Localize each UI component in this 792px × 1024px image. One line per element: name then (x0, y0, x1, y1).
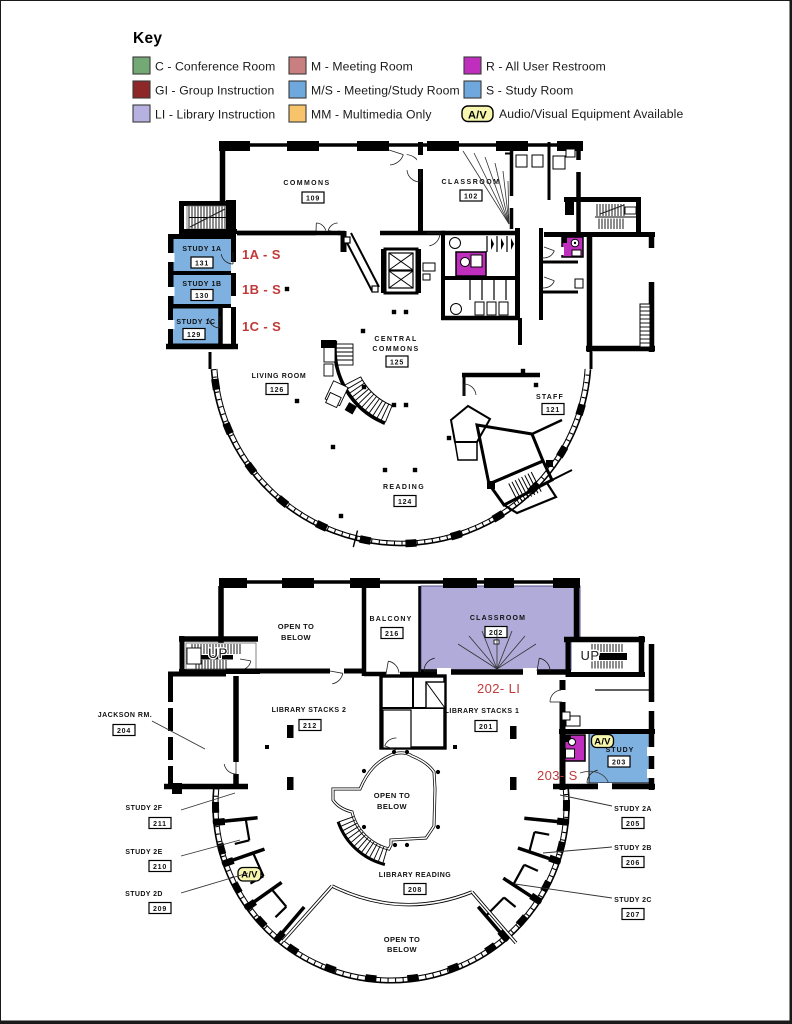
svg-text:109: 109 (306, 196, 320, 203)
svg-text:206: 206 (626, 860, 640, 867)
svg-text:CLASSROOM: CLASSROOM (442, 179, 501, 186)
svg-text:COMMONS: COMMONS (372, 346, 419, 353)
svg-text:203: 203 (612, 760, 626, 767)
svg-text:BELOW: BELOW (377, 802, 407, 811)
svg-text:STUDY 2B: STUDY 2B (614, 845, 652, 852)
svg-text:129: 129 (187, 332, 201, 339)
svg-text:STUDY 1C: STUDY 1C (176, 319, 215, 326)
svg-text:STAFF: STAFF (536, 394, 564, 401)
svg-text:207: 207 (626, 912, 640, 919)
svg-text:124: 124 (398, 499, 412, 506)
svg-text:LIVING ROOM: LIVING ROOM (252, 373, 307, 380)
svg-text:202: 202 (489, 630, 503, 637)
svg-text:M/S - Meeting/Study Room: M/S - Meeting/Study Room (311, 84, 460, 98)
svg-text:131: 131 (195, 261, 209, 268)
svg-text:BELOW: BELOW (281, 633, 311, 642)
svg-text:1C - S: 1C - S (242, 319, 281, 334)
svg-text:CENTRAL: CENTRAL (374, 336, 417, 343)
svg-text:STUDY 1B: STUDY 1B (182, 281, 221, 288)
svg-text:STUDY 2A: STUDY 2A (614, 806, 652, 813)
svg-text:102: 102 (464, 194, 478, 201)
svg-text:S - Study Room: S - Study Room (486, 84, 573, 98)
svg-text:204: 204 (117, 728, 131, 735)
svg-text:Key: Key (133, 30, 162, 47)
svg-text:212: 212 (303, 723, 317, 730)
svg-text:STUDY 2F: STUDY 2F (126, 805, 163, 812)
svg-text:Audio/Visual Equipment Availab: Audio/Visual Equipment Available (499, 107, 683, 121)
svg-text:208: 208 (408, 887, 422, 894)
svg-text:STUDY 2E: STUDY 2E (125, 849, 162, 856)
svg-text:BALCONY: BALCONY (369, 616, 412, 623)
svg-text:JACKSON RM.: JACKSON RM. (98, 712, 153, 719)
svg-text:210: 210 (153, 864, 167, 871)
svg-text:BELOW: BELOW (387, 945, 417, 954)
svg-text:216: 216 (385, 631, 399, 638)
svg-text:STUDY 1A: STUDY 1A (182, 246, 221, 253)
svg-text:STUDY: STUDY (606, 747, 635, 754)
svg-text:211: 211 (153, 821, 167, 828)
svg-text:205: 205 (626, 821, 640, 828)
svg-text:LIBRARY STACKS 2: LIBRARY STACKS 2 (272, 707, 347, 714)
svg-text:201: 201 (479, 724, 493, 731)
svg-text:CLASSROOM: CLASSROOM (470, 615, 526, 622)
svg-text:202- LI: 202- LI (477, 681, 520, 696)
svg-text:203- S: 203- S (537, 768, 578, 783)
svg-text:1B - S: 1B - S (242, 282, 281, 297)
svg-text:130: 130 (195, 293, 209, 300)
svg-text:STUDY 2C: STUDY 2C (614, 897, 652, 904)
svg-text:M - Meeting Room: M - Meeting Room (311, 60, 413, 74)
svg-text:UP: UP (208, 646, 228, 661)
svg-text:LI - Library Instruction: LI - Library Instruction (155, 108, 275, 122)
svg-text:A/V: A/V (468, 110, 487, 122)
svg-text:COMMONS: COMMONS (283, 180, 330, 187)
svg-text:C - Conference Room: C - Conference Room (155, 60, 275, 74)
svg-text:READING: READING (383, 484, 425, 491)
svg-text:OPEN TO: OPEN TO (374, 791, 410, 800)
svg-text:MM - Multimedia Only: MM - Multimedia Only (311, 108, 432, 122)
svg-text:LIBRARY READING: LIBRARY READING (379, 872, 452, 879)
svg-text:209: 209 (153, 906, 167, 913)
svg-text:UP: UP (580, 648, 599, 663)
svg-text:A/V: A/V (241, 870, 258, 881)
svg-text:GI - Group Instruction: GI - Group Instruction (155, 84, 274, 98)
svg-text:R - All User Restroom: R - All User Restroom (486, 60, 606, 74)
svg-text:121: 121 (546, 407, 560, 414)
svg-text:OPEN TO: OPEN TO (278, 622, 314, 631)
svg-text:A/V: A/V (594, 737, 611, 748)
svg-text:OPEN TO: OPEN TO (384, 935, 420, 944)
svg-text:125: 125 (390, 360, 404, 367)
svg-text:1A - S: 1A - S (242, 247, 281, 262)
svg-text:126: 126 (270, 387, 284, 394)
svg-text:STUDY 2D: STUDY 2D (125, 891, 163, 898)
svg-text:LIBRARY STACKS 1: LIBRARY STACKS 1 (445, 708, 520, 715)
